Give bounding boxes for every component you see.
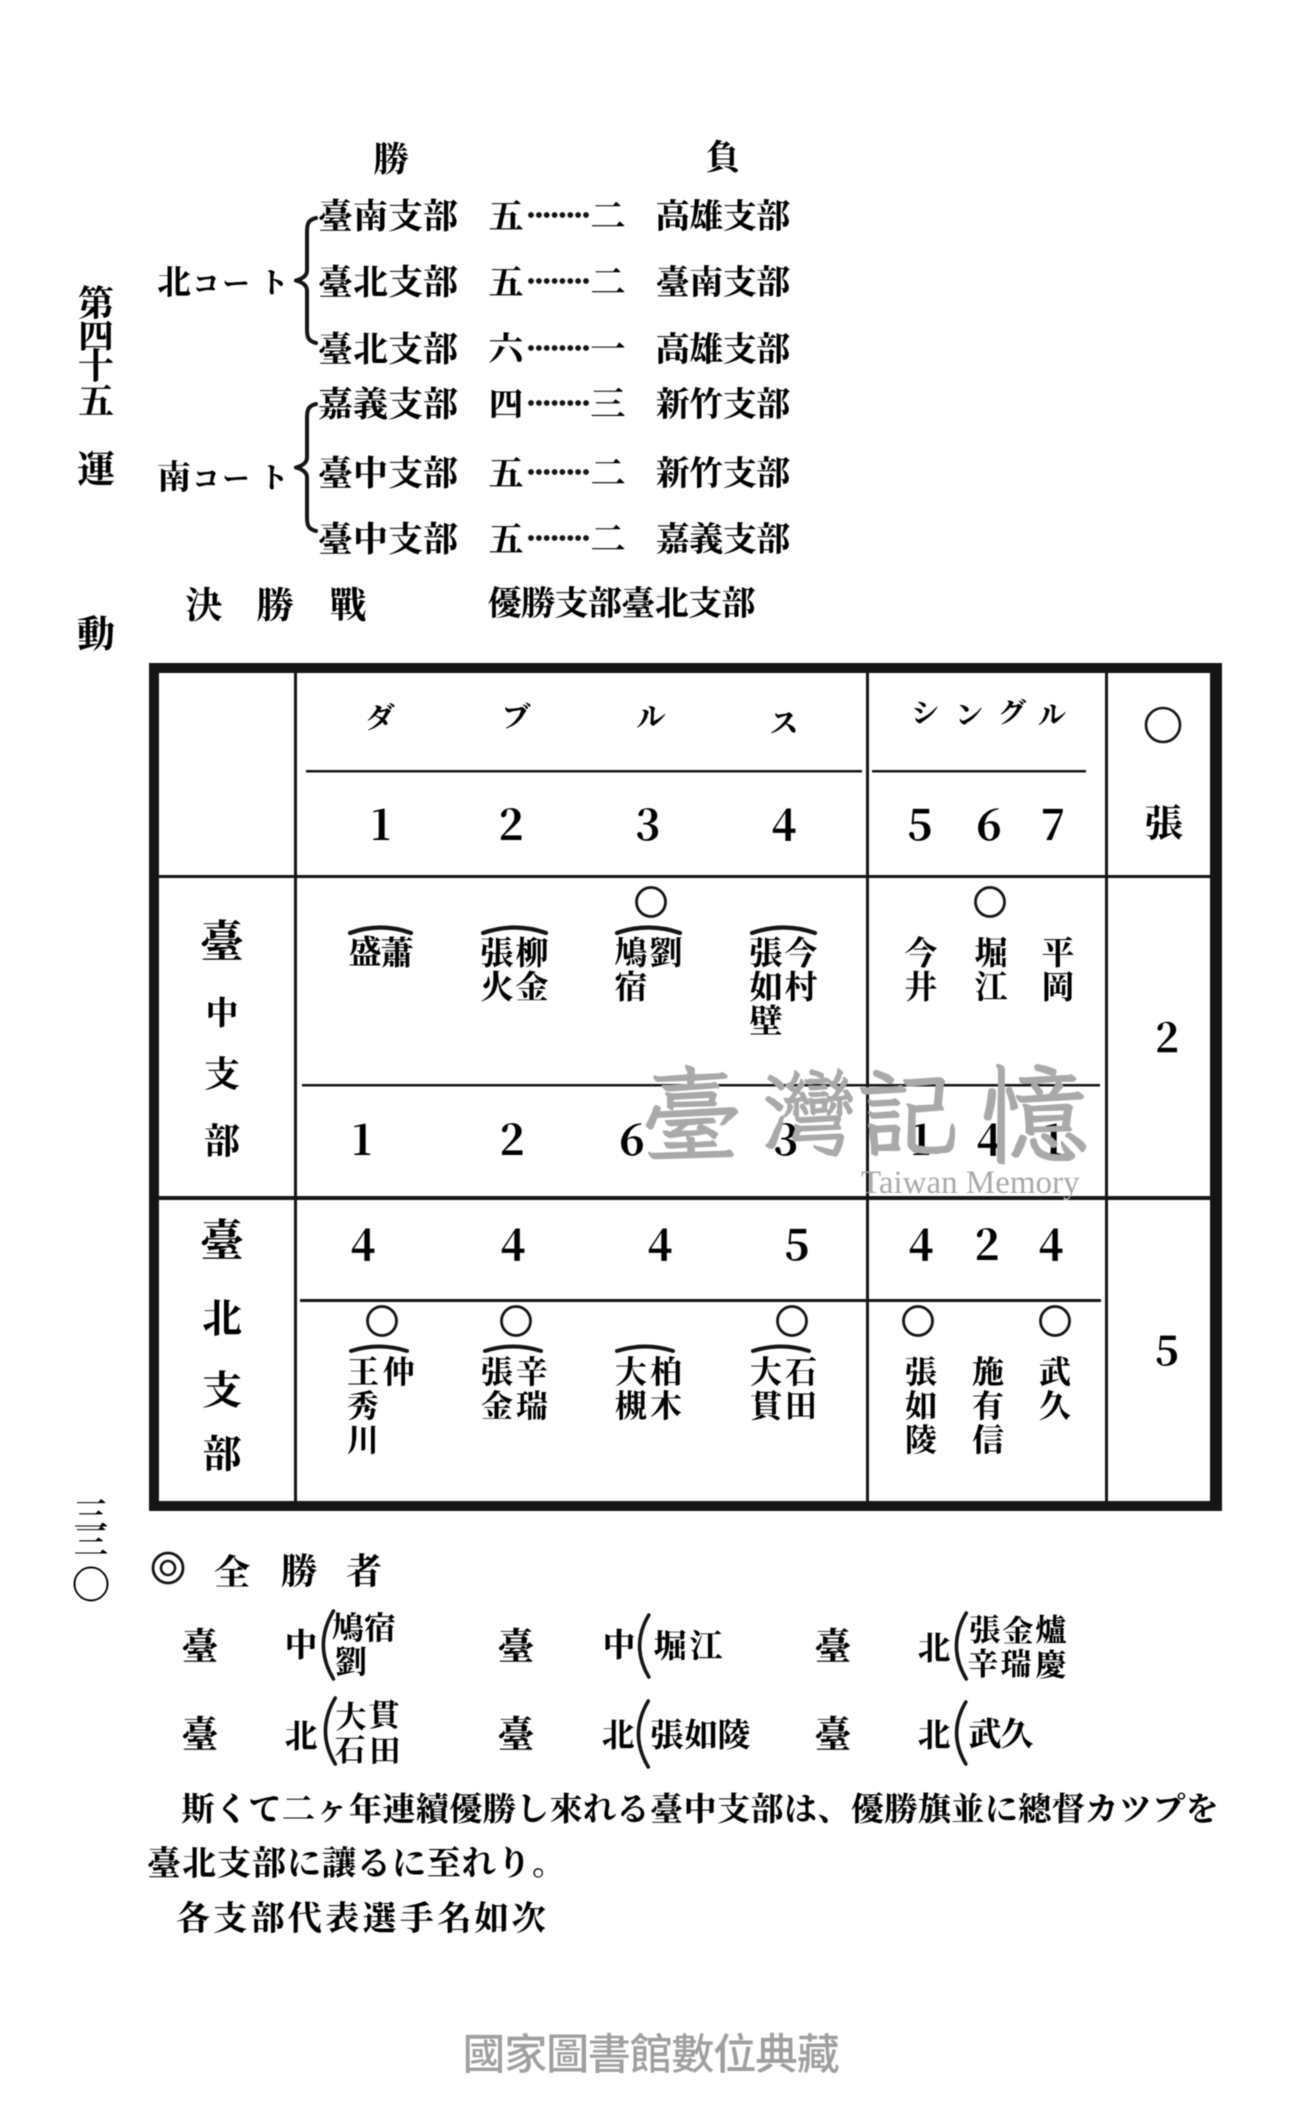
svg-text:Taiwan Memory: Taiwan Memory: [861, 1165, 1080, 1201]
